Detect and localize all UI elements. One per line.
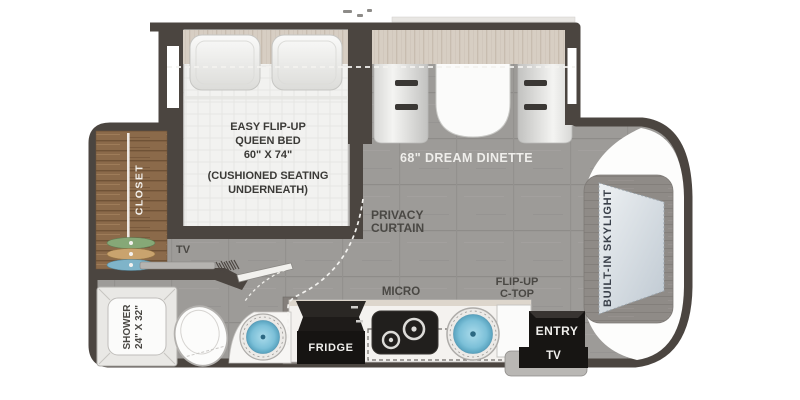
- flip-label-line1: FLIP-UP: [482, 277, 552, 289]
- privacy-curtain-label: PRIVACY CURTAIN: [371, 209, 424, 235]
- bed-label-line3: 60" X 74": [186, 148, 350, 162]
- kitchen-sink: [447, 308, 499, 360]
- fridge: [296, 301, 366, 364]
- shower-label-line2: 24" X 32": [134, 272, 146, 382]
- window-dinette-side: [568, 48, 577, 104]
- privacy-label-line2: CURTAIN: [371, 222, 424, 235]
- closet: [96, 131, 167, 271]
- closet-label: CLOSET: [134, 145, 149, 235]
- rv-floorplan: EASY FLIP-UP QUEEN BED 60" X 74" (CUSHIO…: [0, 0, 800, 400]
- bed-label-line2: QUEEN BED: [186, 134, 350, 148]
- fridge-label: FRIDGE: [299, 342, 363, 354]
- flip-label-line2: C-TOP: [482, 289, 552, 301]
- bedroom-tv-label: TV: [168, 244, 198, 256]
- entry-tv-label: TV: [519, 350, 588, 362]
- bed-label-line1: EASY FLIP-UP: [186, 120, 350, 134]
- entry-label: ENTRY: [529, 324, 585, 338]
- shower-label: SHOWER 24" X 32": [122, 272, 148, 382]
- cooktop: [372, 311, 438, 354]
- dinette-label: 68" DREAM DINETTE: [384, 151, 549, 165]
- awning-strip: [392, 17, 575, 22]
- micro-label: MICRO: [366, 286, 436, 298]
- bed-sublabel-line2: UNDERNEATH): [186, 183, 350, 197]
- bed-label: EASY FLIP-UP QUEEN BED 60" X 74" (CUSHIO…: [186, 120, 350, 197]
- shower-label-line1: SHOWER: [122, 272, 134, 382]
- window-bed-side: [167, 46, 179, 108]
- flip-up-ctop-label: FLIP-UP C-TOP: [482, 277, 552, 300]
- floorplan-drawing: [0, 0, 800, 400]
- roof-marks: [343, 9, 372, 17]
- bed-sublabel-line1: (CUSHIONED SEATING: [186, 169, 350, 183]
- skylight-label: BUILT-IN SKYLIGHT: [602, 183, 616, 313]
- sheet-fold: [184, 96, 348, 100]
